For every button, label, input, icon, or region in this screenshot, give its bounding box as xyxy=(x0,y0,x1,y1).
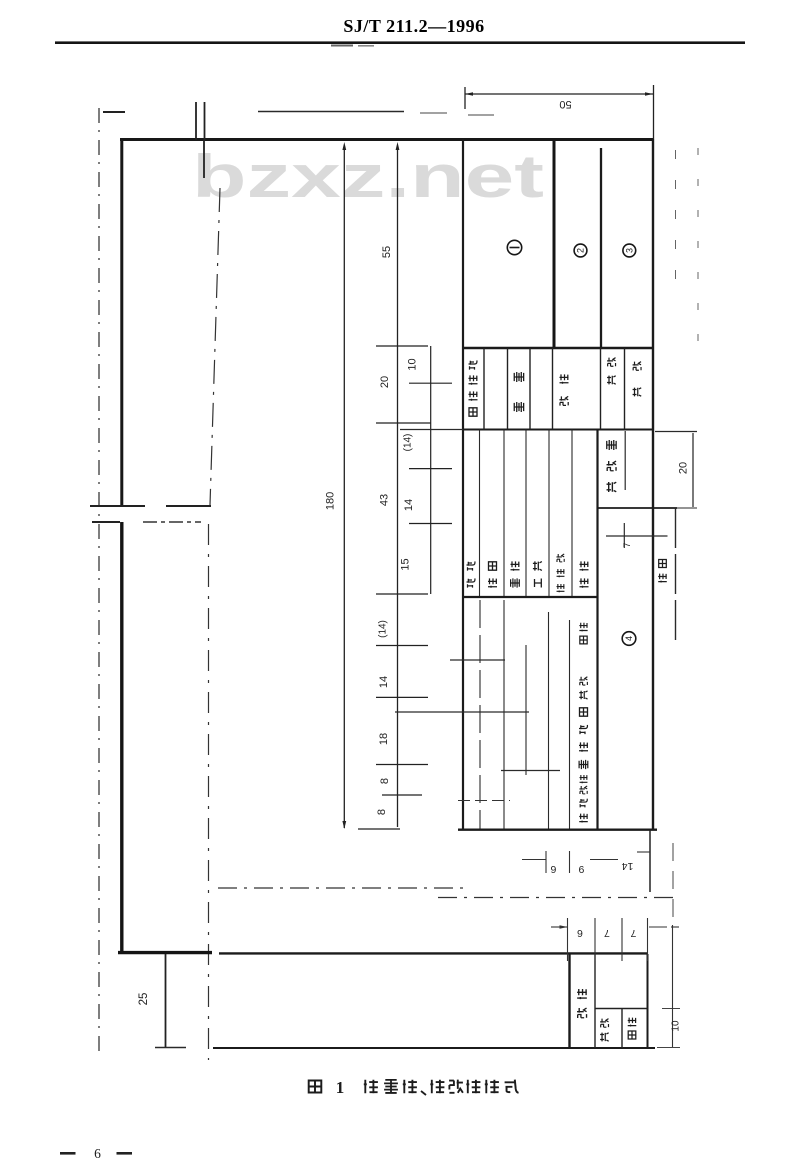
svg-text:bzxz.net: bzxz.net xyxy=(192,143,544,210)
svg-text:180: 180 xyxy=(325,492,337,510)
svg-text:(14): (14) xyxy=(403,434,414,452)
svg-text:7: 7 xyxy=(622,542,632,547)
svg-text:4: 4 xyxy=(624,636,634,641)
svg-text:9: 9 xyxy=(578,863,584,875)
svg-text:7: 7 xyxy=(604,927,610,939)
svg-text:25: 25 xyxy=(138,993,150,1006)
svg-text:6: 6 xyxy=(550,863,556,875)
svg-text:7: 7 xyxy=(630,927,636,939)
svg-text:1: 1 xyxy=(336,1078,345,1097)
svg-text:20: 20 xyxy=(379,376,391,388)
svg-text:20: 20 xyxy=(678,462,690,474)
svg-text:6: 6 xyxy=(577,927,583,939)
svg-text:8: 8 xyxy=(379,778,391,784)
svg-text:14: 14 xyxy=(378,676,390,688)
svg-text:10: 10 xyxy=(407,358,419,370)
svg-text:8: 8 xyxy=(376,809,388,815)
svg-text:10: 10 xyxy=(671,1020,682,1032)
svg-text:14: 14 xyxy=(403,499,415,511)
svg-text:(14): (14) xyxy=(378,620,389,638)
svg-text:55: 55 xyxy=(381,246,393,258)
svg-text:6: 6 xyxy=(94,1146,101,1161)
svg-text:3: 3 xyxy=(624,248,634,253)
svg-text:50: 50 xyxy=(559,98,571,110)
svg-text:15: 15 xyxy=(400,558,412,570)
svg-text:18: 18 xyxy=(378,733,390,745)
svg-text:43: 43 xyxy=(379,494,391,506)
svg-text:2: 2 xyxy=(576,248,586,253)
svg-text:14: 14 xyxy=(622,860,634,872)
svg-text:SJ/T 211.2—1996: SJ/T 211.2—1996 xyxy=(343,16,484,36)
